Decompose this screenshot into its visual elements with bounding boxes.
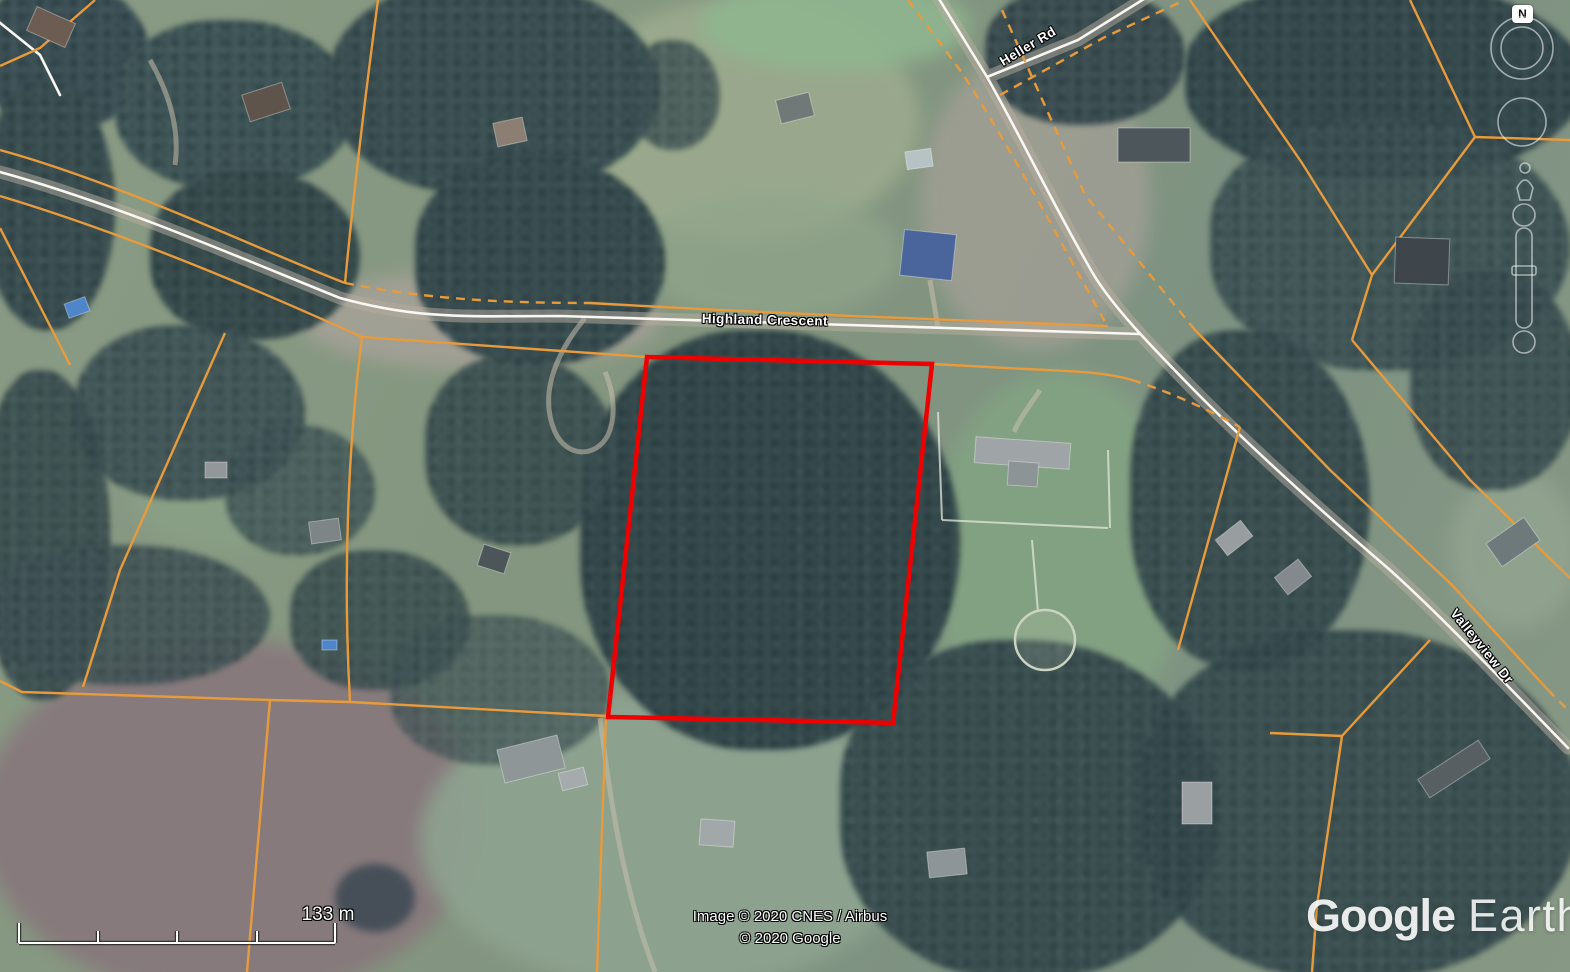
building-footprint bbox=[927, 848, 968, 878]
logo-earth: Earth bbox=[1468, 890, 1570, 942]
building-footprint bbox=[900, 229, 957, 280]
google-earth-logo: Google Earth bbox=[1306, 890, 1570, 942]
building-footprint bbox=[309, 518, 342, 544]
road-highland-crescent bbox=[0, 172, 1140, 334]
navigation-controls bbox=[1480, 0, 1570, 380]
attribution-line1: Image © 2020 CNES / Airbus bbox=[640, 906, 940, 928]
buildings bbox=[27, 7, 1540, 878]
building-footprint bbox=[205, 462, 227, 478]
building-footprint bbox=[699, 819, 735, 847]
building-footprint bbox=[776, 92, 815, 124]
building-footprint bbox=[242, 82, 291, 122]
building-footprint bbox=[27, 7, 76, 48]
attribution: Image © 2020 CNES / Airbus © 2020 Google bbox=[640, 906, 940, 950]
driveways bbox=[150, 60, 1040, 972]
logo-google: Google bbox=[1306, 890, 1455, 942]
building-footprint bbox=[905, 148, 933, 169]
building-footprint bbox=[1215, 520, 1253, 555]
property-boundary-polygon[interactable] bbox=[608, 357, 932, 723]
map-viewport[interactable]: Highland Crescent Heller Rd Valleyview D… bbox=[0, 0, 1570, 972]
circular-garden bbox=[1015, 610, 1075, 670]
building-footprint bbox=[477, 544, 510, 574]
building-footprint bbox=[322, 640, 337, 650]
building-footprint bbox=[493, 117, 527, 147]
map-overlay bbox=[0, 0, 1570, 972]
cadastral-lines-dashed bbox=[345, 0, 1570, 712]
zoom-slider[interactable] bbox=[1512, 204, 1536, 353]
building-footprint bbox=[64, 297, 90, 319]
building-footprint bbox=[558, 767, 588, 791]
building-footprint bbox=[1274, 559, 1311, 595]
building-footprint bbox=[1182, 782, 1212, 824]
building-footprint bbox=[1486, 517, 1540, 566]
scale-bar-label: 133 m bbox=[288, 904, 368, 926]
building-footprint bbox=[1118, 128, 1190, 162]
pegman-icon[interactable] bbox=[1517, 163, 1533, 200]
scale-bar: 133 m bbox=[0, 898, 390, 962]
building-footprint bbox=[1394, 237, 1450, 285]
look-joystick[interactable] bbox=[1498, 98, 1546, 146]
compass-ring[interactable] bbox=[1491, 17, 1553, 79]
attribution-line2: © 2020 Google bbox=[640, 928, 940, 950]
building-footprint bbox=[1418, 740, 1490, 798]
building-footprint bbox=[1007, 461, 1039, 487]
building-footprint bbox=[497, 735, 565, 783]
cadastral-lines bbox=[0, 0, 1570, 972]
